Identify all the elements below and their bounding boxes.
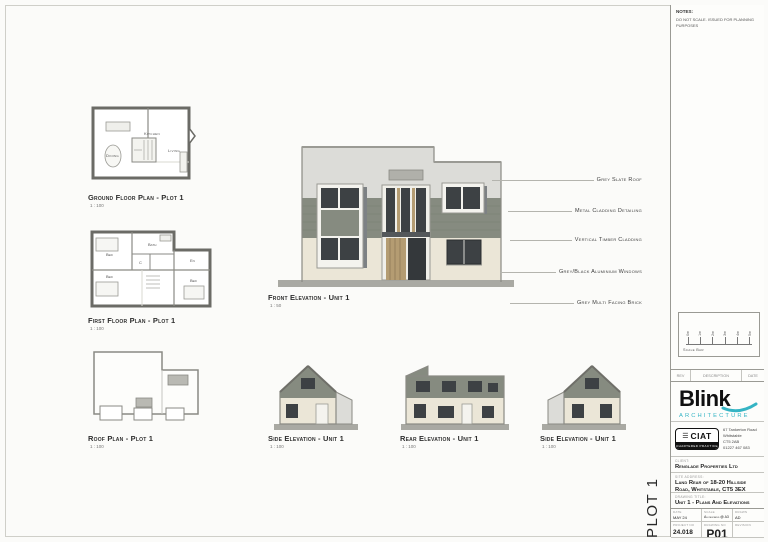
room-label-living: Living xyxy=(168,148,181,153)
annotation-label: Grey Slate Roof xyxy=(597,177,642,183)
date-cell: DATE MAY 24 xyxy=(671,509,702,522)
side-elevation-right-drawing xyxy=(538,352,630,434)
client-field: CLIENT: Renglade Properties Ltd xyxy=(671,456,764,472)
drawing-title-label: DRAWING TITLE: xyxy=(675,495,760,499)
bay-window xyxy=(189,128,195,144)
practice-address: 67 Tankerton Road Whitstable CT5 2AB 012… xyxy=(723,427,757,452)
left-window-assembly xyxy=(317,184,367,268)
door-sidelight xyxy=(408,238,426,280)
scale-label: SCALE xyxy=(704,510,730,514)
blink-logo: Blink ARCHITECTURE xyxy=(675,384,761,420)
architecture-wordmark: ARCHITECTURE xyxy=(679,413,750,419)
side-window xyxy=(572,404,584,418)
revision-col-description: DESCRIPTION xyxy=(691,370,742,381)
leader-line xyxy=(492,180,594,181)
drawing-number-cell: DRAWING NO P01 xyxy=(702,522,733,538)
front-elevation-view-label: Front Elevation - Unit 1 1 : 50 xyxy=(268,293,350,308)
bed-furniture xyxy=(96,282,118,296)
right-upper-window xyxy=(442,183,487,214)
scale-bar-tick: 0m xyxy=(686,331,690,344)
room-label-bath: Bath xyxy=(148,242,156,247)
roof-projection xyxy=(100,406,122,420)
side-elevation-right-title: Side Elevation - Unit 1 xyxy=(540,434,616,443)
room-label-bed1: Bed xyxy=(106,252,114,257)
front-elevation-drawing xyxy=(270,130,522,292)
ground-floor-plan-drawing: Kitchen Living Dining xyxy=(86,96,204,190)
scale-bar: 0m 1m 2m 3m 4m 5m Scale Bar xyxy=(678,312,760,357)
room-label-kitchen: Kitchen xyxy=(144,131,160,136)
annotation-label: Grey Multi Facing Brick xyxy=(577,300,642,306)
roof-projection xyxy=(166,408,184,420)
roof-scale: 1 : 100 xyxy=(90,444,153,449)
room-label-bed3: Bed xyxy=(190,278,198,283)
ground-line xyxy=(542,424,626,430)
annotation-label: Grey/Black Aluminium Windows xyxy=(559,269,642,275)
scale-bar-caption: Scale Bar xyxy=(683,348,759,352)
tick-mark xyxy=(700,337,701,344)
client-label: CLIENT: xyxy=(675,459,760,463)
leader-line xyxy=(510,303,574,304)
revision-label: REVISION xyxy=(735,523,762,527)
scale-bar-tick: 4m xyxy=(736,331,740,344)
annotation-row: Grey/Black Aluminium Windows xyxy=(500,268,642,276)
rear-window xyxy=(414,404,426,418)
ciat-mark-icon: ☰ xyxy=(682,432,688,440)
roof-view-label: Roof Plan - Plot 1 1 : 100 xyxy=(88,434,153,449)
sofa xyxy=(180,152,187,172)
side-window xyxy=(600,404,612,418)
title-block: NOTES: DO NOT SCALE. ISSUED FOR PLANNING… xyxy=(670,5,764,537)
side-elevation-right-scale: 1 : 100 xyxy=(542,444,616,449)
revision-col-rev: REV xyxy=(671,370,691,381)
revision-col-date: DATE xyxy=(742,370,764,381)
client-value: Renglade Properties Ltd xyxy=(675,464,760,471)
date-label: DATE xyxy=(673,510,699,514)
notes-section: NOTES: DO NOT SCALE. ISSUED FOR PLANNING… xyxy=(671,9,764,28)
scale-bar-baseline xyxy=(686,344,752,345)
tick-mark xyxy=(749,337,750,344)
tick-label: 3m xyxy=(723,331,727,336)
practice-logo: Blink ARCHITECTURE xyxy=(671,383,764,421)
ciat-name: CIAT xyxy=(691,431,712,441)
tick-label: 5m xyxy=(748,331,752,336)
first-floor-title: First Floor Plan - Plot 1 xyxy=(88,316,175,325)
entrance-door xyxy=(386,238,406,280)
address-line: 01227 467 083 xyxy=(723,445,757,451)
roof-plan-drawing xyxy=(86,346,208,432)
bath-fixture xyxy=(160,235,171,241)
ground-floor-view-label: Ground Floor Plan - Plot 1 1 : 100 xyxy=(88,193,184,208)
annotation-label: Vertical Timber Cladding xyxy=(575,237,642,243)
title-block-grid: DATE MAY 24 SCALE As indicated @ A3 DRAW… xyxy=(671,508,764,538)
drawing-number-value: P01 xyxy=(704,527,730,538)
tick-label: 4m xyxy=(736,331,740,336)
ground-line xyxy=(278,280,514,287)
notes-title: NOTES: xyxy=(676,9,759,14)
ground-floor-title: Ground Floor Plan - Plot 1 xyxy=(88,193,184,202)
rear-elevation-drawing xyxy=(398,360,512,433)
side-elevation-left-title: Side Elevation - Unit 1 xyxy=(268,434,344,443)
ciat-section: ☰ CIAT CHARTERED PRACTICE 67 Tankerton R… xyxy=(671,421,764,456)
ground-line xyxy=(401,424,509,430)
project-number-value: 24.018 xyxy=(673,529,699,536)
rear-elevation-view-label: Rear Elevation - Unit 1 1 : 100 xyxy=(400,434,479,449)
ciat-chartered-badge: CHARTERED PRACTICE xyxy=(676,442,718,449)
gable-window xyxy=(301,378,315,389)
rear-door xyxy=(462,404,472,424)
roof-title: Roof Plan - Plot 1 xyxy=(88,434,153,443)
tick-mark xyxy=(725,337,726,344)
annotation-row: Grey Slate Roof xyxy=(492,176,642,184)
annotation-row: Grey Multi Facing Brick xyxy=(510,299,642,307)
revision-header-row: REV DESCRIPTION DATE xyxy=(671,369,764,382)
site-label: SITE ADDRESS: xyxy=(675,475,760,479)
kitchen-island xyxy=(106,122,130,131)
side-window xyxy=(286,404,298,418)
scale-bar-ticks: 0m 1m 2m 3m 4m 5m xyxy=(679,316,759,344)
notes-body: DO NOT SCALE. ISSUED FOR PLANNING PURPOS… xyxy=(676,17,759,28)
side-elevation-left-view-label: Side Elevation - Unit 1 1 : 100 xyxy=(268,434,344,449)
gable-window xyxy=(585,378,599,389)
ground-floor-scale: 1 : 100 xyxy=(90,203,184,208)
first-floor-plan-drawing: Bed Bath C En Bed Bed xyxy=(86,224,216,314)
drawing-title-value: Unit 1 - Plans And Elevations xyxy=(675,500,760,507)
tick-label: 2m xyxy=(711,331,715,336)
room-label-ensuite: En xyxy=(190,258,195,263)
vent-panel xyxy=(389,170,423,180)
rear-window xyxy=(438,406,454,418)
room-label-cupboard: C xyxy=(139,260,142,265)
date-value: MAY 24 xyxy=(673,515,699,520)
first-floor-scale: 1 : 100 xyxy=(90,326,175,331)
project-number-cell: PROJECT NO 24.018 xyxy=(671,522,702,538)
rooflight xyxy=(168,375,188,385)
scale-bar-tick: 1m xyxy=(698,331,702,344)
rooflight xyxy=(136,398,152,407)
tick-label: 1m xyxy=(698,331,702,336)
scale-value: As indicated @ A3 xyxy=(704,515,730,519)
leader-line xyxy=(508,211,572,212)
scale-cell: SCALE As indicated @ A3 xyxy=(702,509,733,522)
drawn-cell: DRAWN AD xyxy=(733,509,764,522)
roof-projection xyxy=(134,408,152,420)
bed-furniture xyxy=(96,238,118,251)
rear-elevation-scale: 1 : 100 xyxy=(402,444,479,449)
address-line: 67 Tankerton Road xyxy=(723,427,757,433)
side-elevation-left-scale: 1 : 100 xyxy=(270,444,344,449)
revision-cell: REVISION xyxy=(733,522,764,538)
side-elevation-left-drawing xyxy=(270,352,362,434)
drawn-label: DRAWN xyxy=(735,510,762,514)
site-field: SITE ADDRESS: Land Rear of 18-20 Hillsid… xyxy=(671,472,764,492)
tick-label: 0m xyxy=(686,331,690,336)
side-door xyxy=(316,404,328,424)
front-elevation-title: Front Elevation - Unit 1 xyxy=(268,293,350,302)
rear-window xyxy=(482,406,494,418)
ground-line xyxy=(274,424,358,430)
lean-to xyxy=(548,392,564,424)
scale-bar-tick: 3m xyxy=(723,331,727,344)
leader-line xyxy=(500,272,556,273)
ciat-logo: ☰ CIAT CHARTERED PRACTICE xyxy=(675,428,719,450)
drawn-value: AD xyxy=(735,515,762,520)
roof-slope xyxy=(406,366,428,376)
first-floor-view-label: First Floor Plan - Plot 1 1 : 100 xyxy=(88,316,175,331)
project-number-label: PROJECT NO xyxy=(673,523,699,527)
rear-window xyxy=(442,381,456,392)
rear-elevation-title: Rear Elevation - Unit 1 xyxy=(400,434,479,443)
annotation-label: Metal Cladding Detailing xyxy=(575,208,642,214)
leader-line xyxy=(510,240,572,241)
tick-mark xyxy=(688,337,689,344)
annotation-row: Vertical Timber Cladding xyxy=(510,236,642,244)
rear-window xyxy=(488,383,498,392)
rear-window xyxy=(468,381,482,392)
room-label-dining: Dining xyxy=(106,153,119,158)
drawing-sheet: Kitchen Living Dining Ground Floor Plan … xyxy=(0,0,768,542)
annotation-row: Metal Cladding Detailing xyxy=(508,207,642,215)
tick-mark xyxy=(737,337,738,344)
drawing-title-field: DRAWING TITLE: Unit 1 - Plans And Elevat… xyxy=(671,492,764,508)
bed-furniture xyxy=(184,286,204,299)
scale-bar-tick: 5m xyxy=(748,331,752,344)
side-elevation-right-view-label: Side Elevation - Unit 1 1 : 100 xyxy=(540,434,616,449)
plot-vertical-label: PLOT 1 xyxy=(644,466,662,538)
scale-bar-tick: 2m xyxy=(711,331,715,344)
right-lower-window xyxy=(446,240,482,265)
tick-mark xyxy=(712,337,713,344)
rear-window xyxy=(416,381,430,392)
lean-to xyxy=(336,392,352,424)
front-elevation-scale: 1 : 50 xyxy=(270,303,350,308)
entrance-glazing xyxy=(382,170,430,280)
room-label-bed2: Bed xyxy=(106,274,114,279)
